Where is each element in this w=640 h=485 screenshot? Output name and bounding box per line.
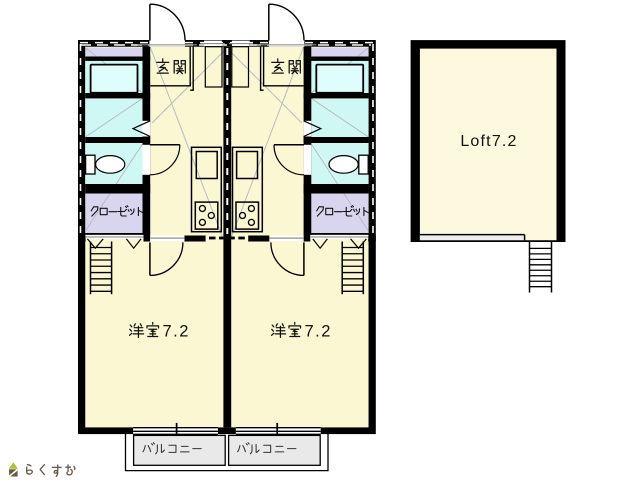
svg-text:7.2: 7.2 <box>305 323 332 341</box>
svg-text:7.2: 7.2 <box>163 323 190 341</box>
svg-text:Loft7.2: Loft7.2 <box>460 133 517 150</box>
